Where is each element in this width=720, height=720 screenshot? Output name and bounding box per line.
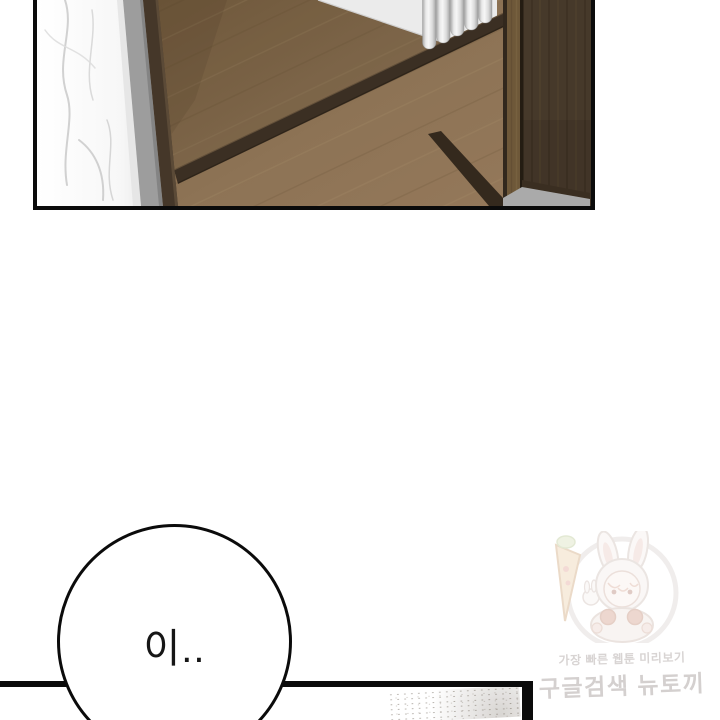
rabbit-icon	[583, 580, 599, 605]
bottom-panel-right-border	[522, 681, 533, 720]
marble-pillar	[37, 0, 141, 206]
bunny-girl-icon	[591, 531, 653, 642]
bookshelf-panel	[33, 0, 595, 210]
watermark-line1: 가장 빠른 웹툰 미리보기	[534, 648, 710, 670]
newtoki-watermark: 가장 빠른 웹툰 미리보기 구글검색 뉴토끼	[534, 531, 710, 701]
carrot-icon	[556, 536, 580, 621]
newtoki-mascot	[534, 531, 710, 643]
speech-bubble-text: 이..	[143, 610, 205, 674]
speech-bubble: 이..	[57, 524, 292, 720]
watermark-line2: 구글검색 뉴토끼	[533, 664, 710, 704]
comic-page: 이..	[0, 0, 720, 720]
side-panel	[503, 0, 591, 206]
bookshelf-artwork	[37, 0, 591, 206]
emblem-circle	[568, 539, 676, 643]
bottom-panel-sketch-texture	[387, 686, 520, 720]
